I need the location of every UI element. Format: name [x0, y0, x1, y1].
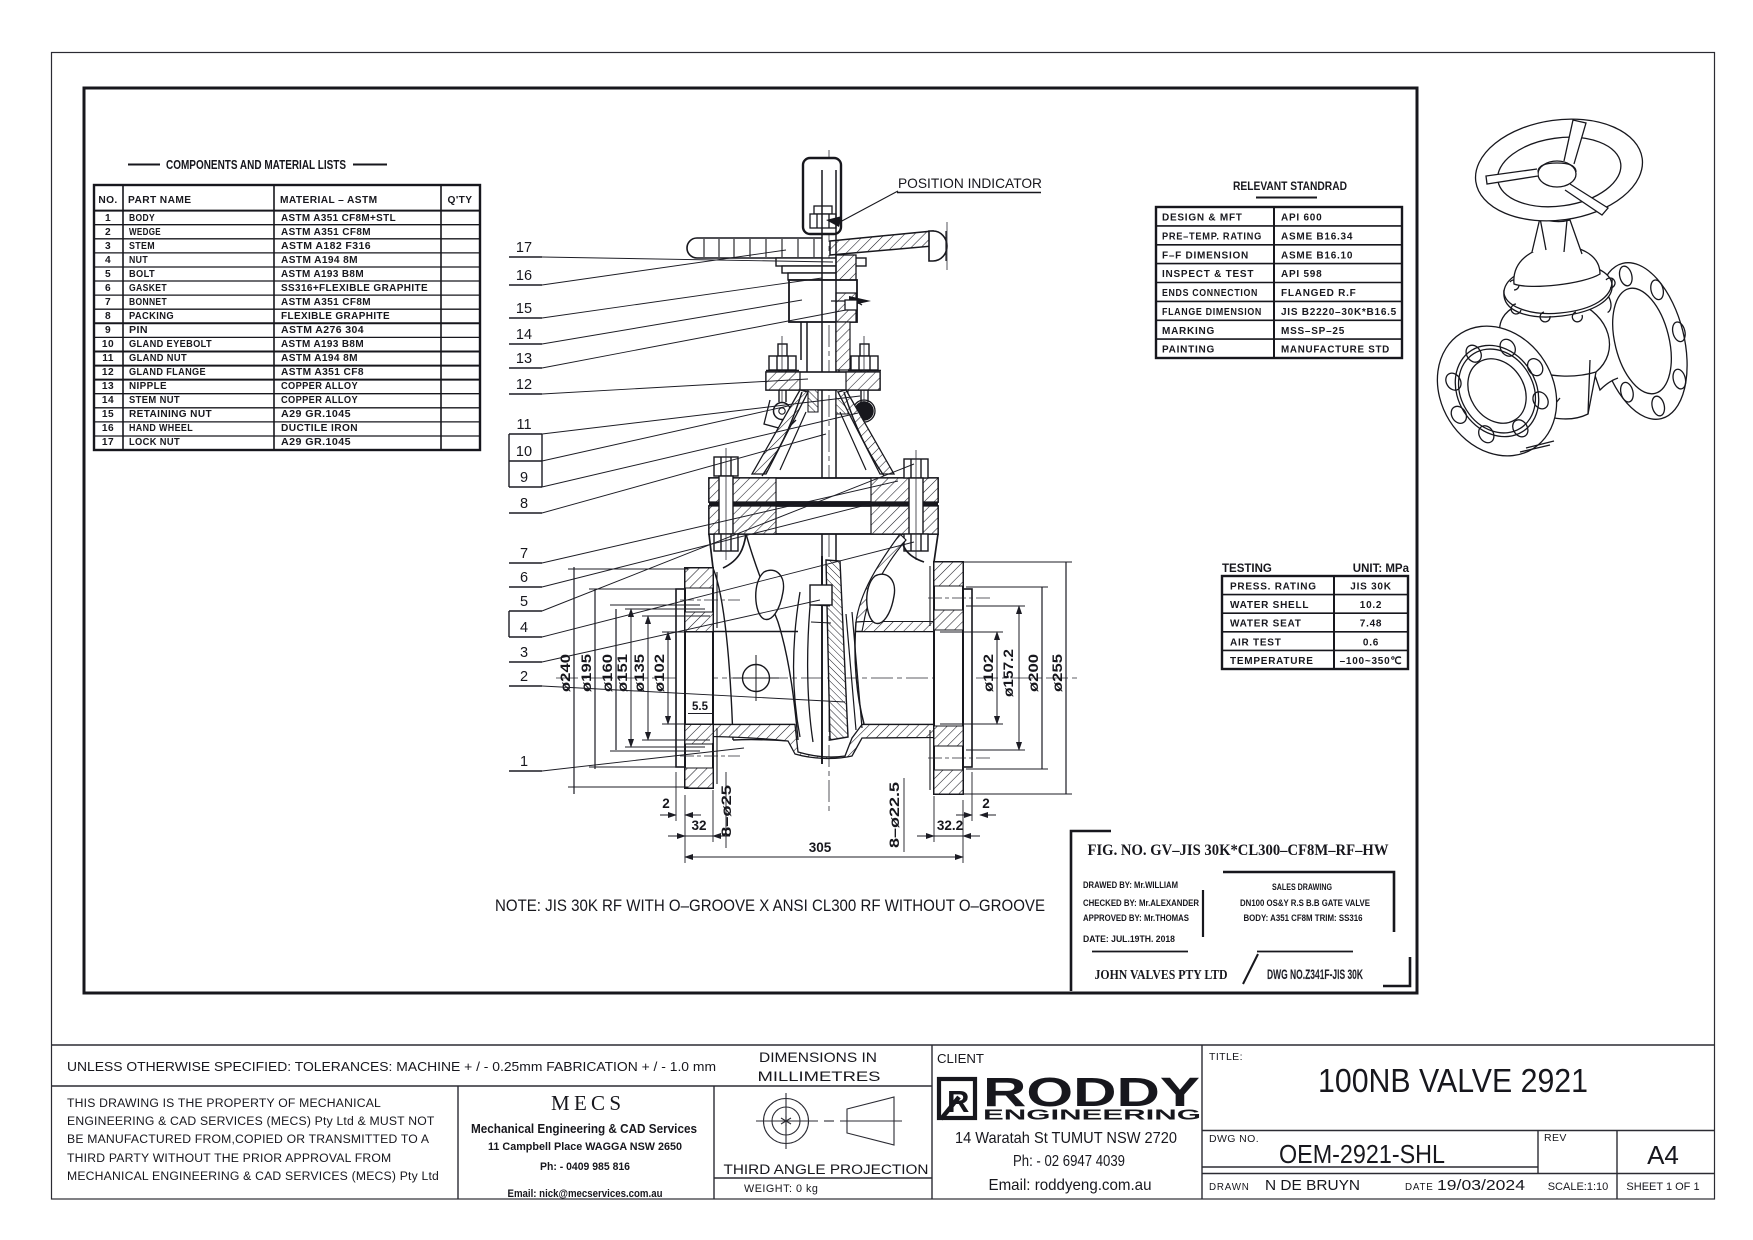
svg-text:WATER SEAT: WATER SEAT: [1230, 619, 1302, 630]
svg-text:1: 1: [105, 213, 111, 224]
svg-text:A29 GR.1045: A29 GR.1045: [281, 437, 351, 448]
svg-text:JIS B2220–30K*B16.5: JIS B2220–30K*B16.5: [1281, 307, 1397, 318]
svg-text:3: 3: [105, 241, 111, 252]
svg-text:F–F DIMENSION: F–F DIMENSION: [1162, 250, 1249, 261]
svg-text:16: 16: [516, 268, 532, 284]
svg-text:NIPPLE: NIPPLE: [129, 381, 167, 392]
svg-text:ENGINEERING & CAD SERVICES (ME: ENGINEERING & CAD SERVICES (MECS) Pty Lt…: [67, 1114, 435, 1128]
svg-text:0.6: 0.6: [1363, 637, 1379, 648]
svg-text:GLAND NUT: GLAND NUT: [129, 353, 187, 364]
svg-text:NO.: NO.: [98, 195, 117, 206]
svg-text:A4: A4: [1647, 1140, 1679, 1170]
svg-text:ASTM A351 CF8M: ASTM A351 CF8M: [281, 227, 371, 238]
svg-text:COPPER ALLOY: COPPER ALLOY: [281, 381, 358, 392]
svg-text:2: 2: [982, 796, 990, 811]
svg-text:7: 7: [520, 546, 528, 562]
svg-text:13: 13: [102, 381, 114, 392]
svg-text:CHECKED BY: Mr.ALEXANDER: CHECKED BY: Mr.ALEXANDER: [1083, 898, 1199, 909]
svg-text:GLAND FLANGE: GLAND FLANGE: [129, 367, 206, 378]
svg-text:POSITION INDICATOR: POSITION INDICATOR: [898, 175, 1042, 191]
svg-text:PACKING: PACKING: [129, 311, 174, 322]
svg-text:FIG. NO. GV–JIS 30K*CL300–C: FIG. NO. GV–JIS 30K*CL300–CF8M–RF–HW: [1088, 842, 1389, 859]
svg-text:100NB VALVE 2921: 100NB VALVE 2921: [1318, 1062, 1588, 1099]
svg-text:ASTM A194 8M: ASTM A194 8M: [281, 255, 358, 266]
svg-text:ASTM A194 8M: ASTM A194 8M: [281, 353, 358, 364]
svg-text:305: 305: [809, 840, 832, 855]
svg-text:UNLESS OTHERWISE SPECIFIED: TO: UNLESS OTHERWISE SPECIFIED: TOLERANCES: …: [67, 1059, 716, 1074]
svg-text:N DE BRUYN: N DE BRUYN: [1265, 1178, 1360, 1194]
svg-text:API 598: API 598: [1281, 269, 1322, 280]
svg-text:MSS–SP–25: MSS–SP–25: [1281, 326, 1345, 337]
svg-text:TITLE:: TITLE:: [1209, 1051, 1243, 1063]
svg-text:PART NAME: PART NAME: [128, 195, 191, 206]
svg-text:7: 7: [105, 297, 111, 308]
svg-text:MILLIMETRES: MILLIMETRES: [758, 1068, 881, 1084]
svg-text:32: 32: [691, 818, 706, 833]
svg-text:GASKET: GASKET: [129, 283, 167, 294]
svg-text:DN100 OS&Y R.S B.B GATE VALVE: DN100 OS&Y R.S B.B GATE VALVE: [1240, 898, 1370, 908]
svg-text:14 Waratah St TUMUT NSW 2720: 14 Waratah St TUMUT NSW 2720: [955, 1130, 1177, 1147]
svg-text:DRAWN: DRAWN: [1209, 1182, 1250, 1193]
svg-text:10: 10: [516, 444, 532, 460]
svg-text:8–ø22.5: 8–ø22.5: [887, 781, 902, 848]
svg-text:ASME B16.34: ASME B16.34: [1281, 231, 1353, 242]
svg-text:SHEET 1 OF 1: SHEET 1 OF 1: [1626, 1181, 1699, 1193]
svg-text:PRESS. RATING: PRESS. RATING: [1230, 582, 1317, 593]
svg-text:ø160: ø160: [600, 654, 615, 692]
svg-text:ASTM A351 CF8: ASTM A351 CF8: [281, 367, 364, 378]
svg-text:32.2: 32.2: [937, 818, 963, 833]
svg-text:ø240: ø240: [558, 654, 573, 692]
svg-text:8: 8: [520, 496, 528, 512]
svg-text:NOTE: JIS 30K RF WITH O–G: NOTE: JIS 30K RF WITH O–GROOVE X ANSI CL…: [495, 896, 1045, 915]
svg-text:ASTM A276 304: ASTM A276 304: [281, 325, 364, 336]
svg-text:COPPER ALLOY: COPPER ALLOY: [281, 395, 358, 406]
svg-text:5.5: 5.5: [692, 701, 709, 713]
svg-text:BODY: BODY: [129, 213, 155, 224]
svg-text:1: 1: [520, 754, 528, 770]
svg-text:ø157.2: ø157.2: [1001, 649, 1016, 697]
svg-text:FLANGED R.F: FLANGED R.F: [1281, 288, 1356, 299]
svg-text:API 600: API 600: [1281, 213, 1322, 224]
svg-text:ASTM A193 B8M: ASTM A193 B8M: [281, 269, 364, 280]
svg-text:7.48: 7.48: [1360, 619, 1382, 630]
svg-text:REV: REV: [1544, 1132, 1567, 1144]
svg-text:16: 16: [102, 423, 114, 434]
svg-text:ASTM A351 CF8M+STL: ASTM A351 CF8M+STL: [281, 213, 396, 224]
svg-text:DESIGN & MFT: DESIGN & MFT: [1162, 213, 1243, 224]
svg-text:STEM: STEM: [129, 241, 155, 252]
svg-text:2: 2: [105, 227, 111, 238]
svg-text:3: 3: [520, 645, 528, 661]
svg-text:2: 2: [662, 796, 670, 811]
svg-text:ø255: ø255: [1050, 653, 1065, 692]
svg-text:MARKING: MARKING: [1162, 326, 1215, 337]
svg-text:NUT: NUT: [129, 255, 148, 266]
svg-text:PIN: PIN: [129, 325, 148, 336]
svg-text:STEM NUT: STEM NUT: [129, 395, 180, 406]
svg-text:MECHANICAL ENGINEERING & CAD S: MECHANICAL ENGINEERING & CAD SERVICES (M…: [67, 1169, 439, 1183]
svg-text:ø195: ø195: [579, 653, 594, 692]
svg-text:BODY: A351 CF8M TRIM: SS316: BODY: A351 CF8M TRIM: SS316: [1244, 913, 1363, 923]
svg-text:DATE: JUL.19TH. 2018: DATE: JUL.19TH. 2018: [1083, 934, 1175, 945]
svg-text:DWG NO.Z341F-JIS 30K: DWG NO.Z341F-JIS 30K: [1267, 966, 1363, 982]
svg-text:11: 11: [102, 353, 114, 364]
svg-text:ø102: ø102: [981, 654, 996, 692]
svg-text:ENGINEERING: ENGINEERING: [983, 1108, 1201, 1124]
svg-text:UNIT: MPa: UNIT: MPa: [1353, 563, 1410, 575]
svg-text:ø102: ø102: [652, 654, 667, 692]
svg-text:9: 9: [520, 470, 528, 486]
svg-text:12: 12: [102, 367, 114, 378]
svg-text:Email: roddyeng.com.au: Email: roddyeng.com.au: [989, 1177, 1152, 1194]
svg-text:A29 GR.1045: A29 GR.1045: [281, 409, 351, 420]
svg-text:DRAWED BY: Mr.WILLIAM: DRAWED BY: Mr.WILLIAM: [1083, 880, 1178, 891]
svg-text:WATER SHELL: WATER SHELL: [1230, 600, 1309, 611]
svg-text:THIRD ANGLE PROJECTION: THIRD ANGLE PROJECTION: [724, 1162, 929, 1177]
svg-text:15: 15: [102, 409, 114, 420]
svg-text:FLANGE DIMENSION: FLANGE DIMENSION: [1162, 307, 1262, 318]
svg-text:M E C S: M E C S: [551, 1091, 621, 1115]
svg-text:10: 10: [102, 339, 114, 350]
svg-text:APPROVED BY: Mr.THOMAS: APPROVED BY: Mr.THOMAS: [1083, 913, 1189, 924]
svg-text:PRE–TEMP. RATING: PRE–TEMP. RATING: [1162, 231, 1262, 242]
svg-text:6: 6: [520, 570, 528, 586]
svg-text:19/03/2024: 19/03/2024: [1437, 1178, 1525, 1194]
svg-text:BONNET: BONNET: [129, 297, 167, 308]
svg-text:Mechanical Engineering & CAD S: Mechanical Engineering & CAD Services: [471, 1121, 697, 1136]
svg-text:–100~350℃: –100~350℃: [1340, 656, 1403, 667]
svg-text:COMPONENTS AND MATERIAL LIS: COMPONENTS AND MATERIAL LISTS: [166, 158, 346, 172]
svg-text:HAND WHEEL: HAND WHEEL: [129, 423, 193, 434]
svg-text:14: 14: [102, 395, 114, 406]
svg-text:CLIENT: CLIENT: [937, 1052, 984, 1066]
svg-text:SALES DRAWING: SALES DRAWING: [1272, 882, 1332, 892]
svg-text:ø135: ø135: [632, 653, 647, 692]
svg-text:4: 4: [105, 255, 111, 266]
svg-text:ENDS CONNECTION: ENDS CONNECTION: [1162, 288, 1258, 299]
svg-text:11: 11: [516, 417, 531, 433]
svg-text:Q'TY: Q'TY: [448, 195, 473, 206]
svg-text:11 Campbell Place WAGGA NSW 26: 11 Campbell Place WAGGA NSW 2650: [488, 1141, 682, 1153]
svg-text:9: 9: [105, 325, 111, 336]
svg-text:RETAINING NUT: RETAINING NUT: [129, 409, 212, 420]
svg-text:INSPECT & TEST: INSPECT & TEST: [1162, 269, 1254, 280]
svg-text:TEMPERATURE: TEMPERATURE: [1230, 656, 1314, 667]
svg-text:RELEVANT STANDRAD: RELEVANT STANDRAD: [1233, 181, 1347, 193]
svg-text:15: 15: [516, 301, 532, 317]
svg-text:Ph: - 02 6947 4039: Ph: - 02 6947 4039: [1013, 1153, 1125, 1170]
svg-text:ASTM A351 CF8M: ASTM A351 CF8M: [281, 297, 371, 308]
svg-text:WEDGE: WEDGE: [129, 227, 161, 238]
svg-text:5: 5: [105, 269, 111, 280]
svg-text:AIR TEST: AIR TEST: [1230, 637, 1282, 648]
svg-text:SS316+FLEXIBLE GRAPHITE: SS316+FLEXIBLE GRAPHITE: [281, 283, 428, 294]
svg-text:BOLT: BOLT: [129, 269, 155, 280]
svg-text:JIS 30K: JIS 30K: [1350, 582, 1391, 593]
svg-text:ASTM A182 F316: ASTM A182 F316: [281, 241, 371, 252]
svg-text:8–ø25: 8–ø25: [719, 784, 734, 837]
svg-text:LOCK NUT: LOCK NUT: [129, 437, 180, 448]
svg-text:17: 17: [516, 240, 532, 256]
svg-text:FLEXIBLE GRAPHITE: FLEXIBLE GRAPHITE: [281, 311, 390, 322]
svg-text:4: 4: [520, 620, 528, 636]
svg-text:ASME B16.10: ASME B16.10: [1281, 250, 1353, 261]
svg-text:DUCTILE IRON: DUCTILE IRON: [281, 423, 358, 434]
svg-text:DWG NO.: DWG NO.: [1209, 1133, 1259, 1145]
svg-text:Email: nick@mecservices.com.au: Email: nick@mecservices.com.au: [508, 1188, 663, 1200]
svg-text:13: 13: [516, 351, 532, 367]
svg-text:ø151: ø151: [615, 653, 630, 692]
svg-text:THIRD PARTY WITHOUT THE PRIOR: THIRD PARTY WITHOUT THE PRIOR APPROVAL F…: [67, 1151, 391, 1165]
svg-text:ASTM A193 B8M: ASTM A193 B8M: [281, 339, 364, 350]
svg-text:12: 12: [516, 377, 532, 393]
svg-text:MANUFACTURE STD: MANUFACTURE STD: [1281, 345, 1390, 356]
svg-text:DATE: DATE: [1405, 1182, 1434, 1193]
svg-text:6: 6: [105, 283, 111, 294]
svg-text:SCALE:1:10: SCALE:1:10: [1548, 1181, 1609, 1193]
svg-text:DIMENSIONS IN: DIMENSIONS IN: [759, 1049, 877, 1065]
svg-text:BE MANUFACTURED FROM,COPIED OR: BE MANUFACTURED FROM,COPIED OR TRANSMITT…: [67, 1132, 430, 1146]
svg-text:JOHN VALVES PTY LTD: JOHN VALVES PTY LTD: [1095, 968, 1228, 983]
svg-text:PAINTING: PAINTING: [1162, 345, 1215, 356]
svg-text:WEIGHT: 0 kg: WEIGHT: 0 kg: [744, 1183, 818, 1195]
svg-text:ø200: ø200: [1026, 654, 1041, 692]
svg-text:MATERIAL – ASTM: MATERIAL – ASTM: [280, 195, 378, 206]
svg-text:2: 2: [520, 669, 528, 685]
svg-text:10.2: 10.2: [1360, 600, 1382, 611]
svg-text:17: 17: [102, 437, 114, 448]
svg-text:THIS DRAWING IS THE PROPERTY O: THIS DRAWING IS THE PROPERTY OF MECHANIC…: [67, 1096, 381, 1110]
svg-text:Ph: - 0409 985 816: Ph: - 0409 985 816: [540, 1161, 630, 1173]
svg-text:14: 14: [516, 327, 532, 343]
svg-text:TESTING: TESTING: [1222, 563, 1272, 575]
svg-text:5: 5: [520, 594, 528, 610]
svg-text:8: 8: [105, 311, 111, 322]
svg-text:OEM-2921-SHL: OEM-2921-SHL: [1279, 1139, 1445, 1169]
svg-text:GLAND EYEBOLT: GLAND EYEBOLT: [129, 339, 212, 350]
